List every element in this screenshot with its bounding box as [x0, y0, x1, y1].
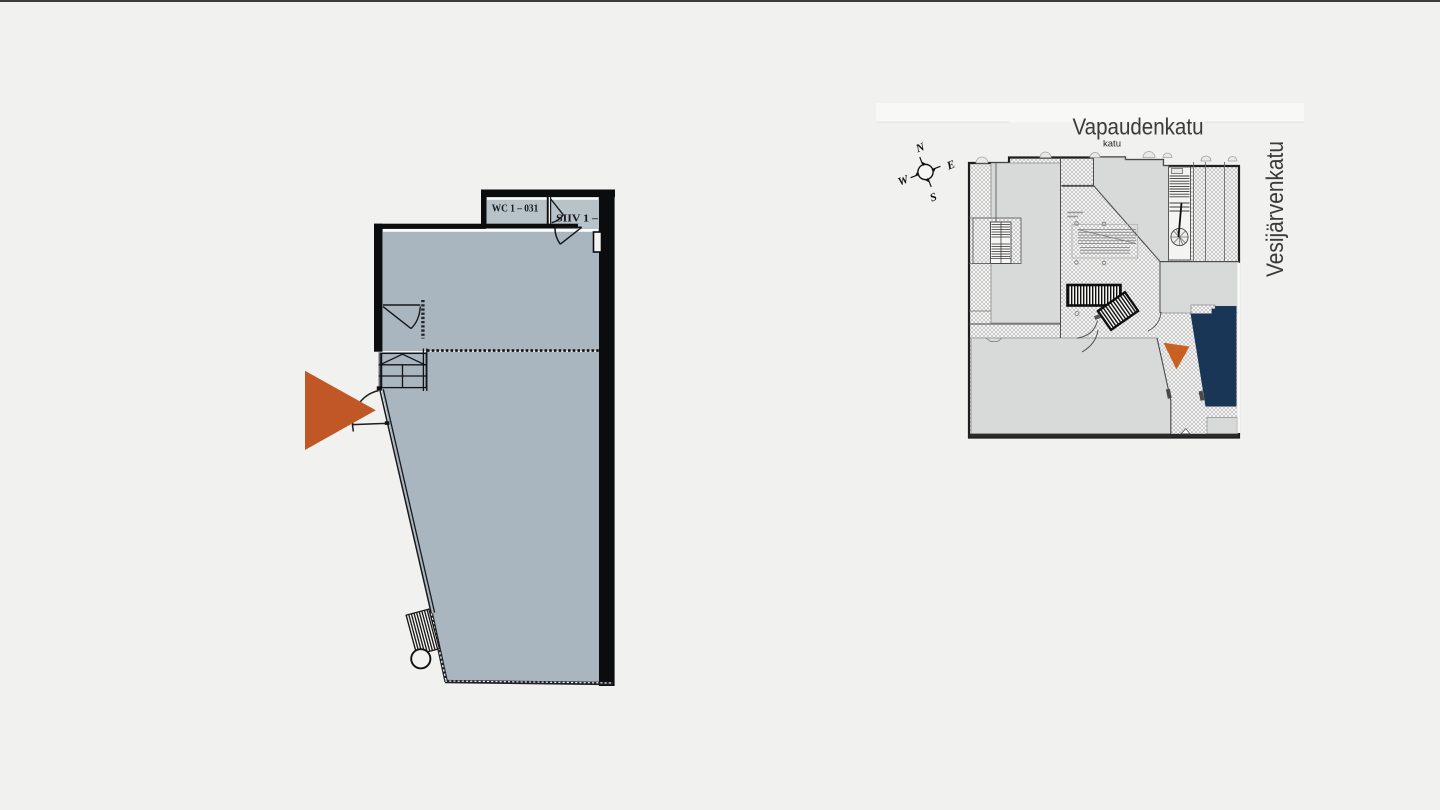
- svg-text:katu: katu: [1103, 139, 1121, 150]
- svg-text:Vesijärvenkatu: Vesijärvenkatu: [1262, 141, 1289, 277]
- svg-text:WC 1 – 031: WC 1 – 031: [492, 203, 539, 214]
- svg-text:Vapaudenkatu: Vapaudenkatu: [1073, 114, 1204, 140]
